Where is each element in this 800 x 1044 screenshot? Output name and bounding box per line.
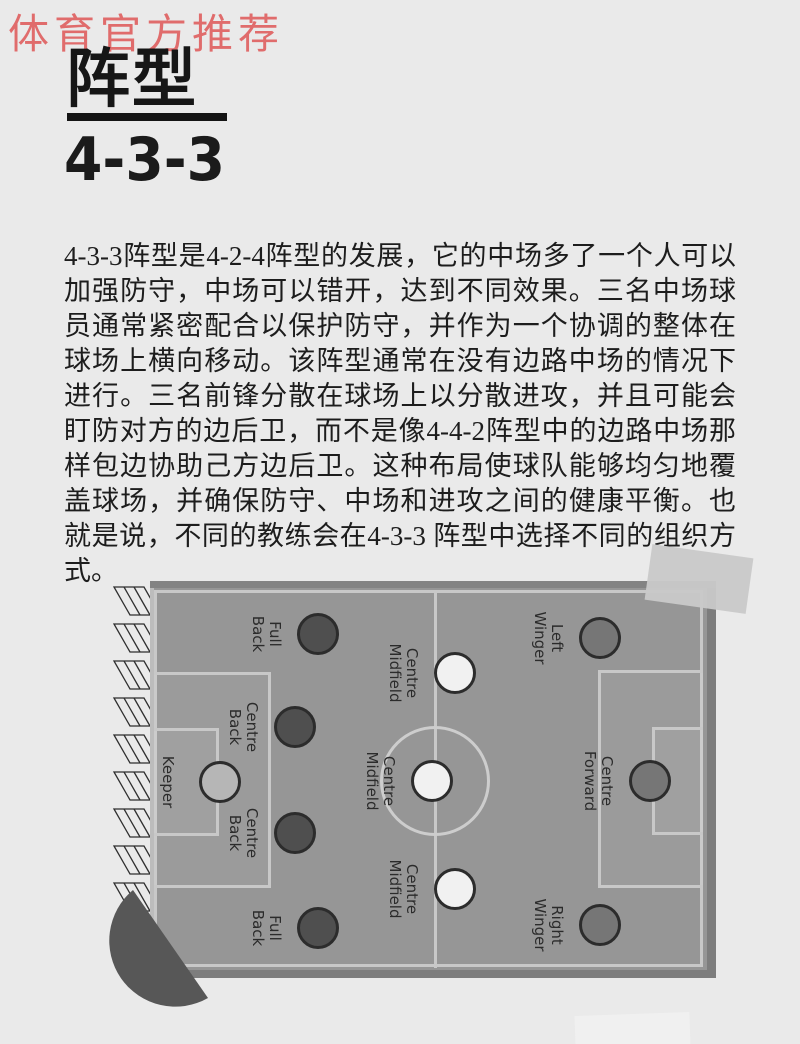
formation-pitch-diagram: Full Back Centre Back Keeper Centre Back… [150,581,716,978]
title-underline [67,113,227,121]
player-marker [434,868,476,910]
player-marker [297,907,339,949]
player-marker [579,617,621,659]
player-label: Centre Midfield [380,857,426,921]
paper-glint [574,1012,690,1044]
player-label: Full Back [243,896,289,960]
infographic-page: 体育官方推荐 阵型 4-3-3 4-3-3阵型是4-2-4阵型的发展，它的中场多… [0,0,800,1044]
player-marker [274,812,316,854]
player-marker [579,904,621,946]
player-marker [629,760,671,802]
player-marker [199,761,241,803]
player-label: Right Winger [525,893,571,957]
player-label: Full Back [243,602,289,666]
player-marker [434,652,476,694]
player-label: Centre Midfield [357,749,403,813]
player-label: Keeper [145,750,191,814]
player-marker [411,760,453,802]
formation-title: 4-3-3 [64,130,225,190]
article-body: 4-3-3阵型是4-2-4阵型的发展，它的中场多了一个人可以加强防守，中场可以错… [64,239,736,589]
page-title: 阵型 [66,48,198,112]
player-label: Left Winger [525,606,571,670]
player-marker [274,706,316,748]
player-label: Centre Back [220,695,266,759]
player-label: Centre Back [220,801,266,865]
player-label: Centre Midfield [380,641,426,705]
player-marker [297,613,339,655]
player-label: Centre Forward [575,749,621,813]
